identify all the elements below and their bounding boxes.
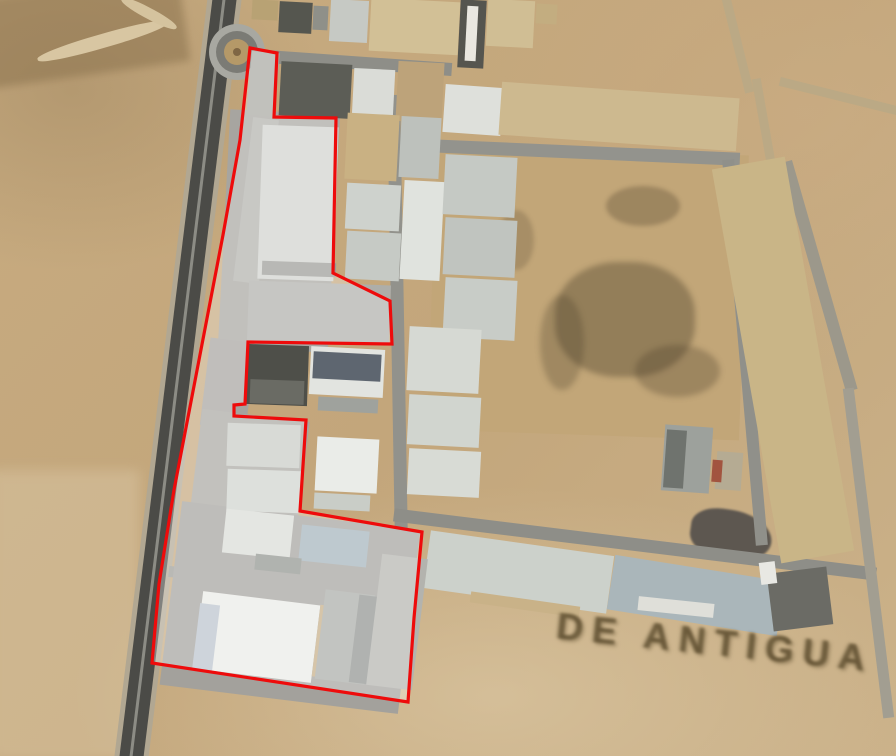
warehouse xyxy=(442,154,517,218)
warehouse xyxy=(442,84,503,136)
warehouse-units xyxy=(222,509,294,560)
warehouse-dark-half xyxy=(663,429,687,488)
solar-panel-roof xyxy=(312,351,381,382)
warehouse xyxy=(443,217,518,278)
warehouse xyxy=(329,0,369,43)
warehouse xyxy=(352,68,396,120)
walled-yard-dark xyxy=(767,567,834,632)
warehouse xyxy=(406,326,481,394)
parked-trucks-row xyxy=(513,172,546,305)
satellite-map-viewport[interactable]: DE ANTIGUA xyxy=(0,0,896,756)
warehouse xyxy=(345,183,401,232)
warehouse xyxy=(250,379,305,405)
warehouse xyxy=(407,448,481,498)
warehouse xyxy=(226,469,300,514)
warehouse xyxy=(407,394,482,448)
yard-top-parcel xyxy=(246,51,279,117)
warehouse-dark-roof xyxy=(278,1,313,34)
container-red xyxy=(711,460,723,483)
warehouse xyxy=(535,3,557,24)
parking-rows xyxy=(247,281,391,346)
warehouse xyxy=(314,493,371,512)
warehouse-dark-roof xyxy=(279,61,353,119)
warehouse-panel-roof xyxy=(315,436,380,493)
loading-dock-row xyxy=(262,261,336,278)
warehouse-large-parcel xyxy=(257,125,338,282)
warehouse xyxy=(398,116,441,179)
truck-yard xyxy=(395,61,444,123)
warehouse xyxy=(251,0,278,21)
warehouse-blue-panels xyxy=(298,525,369,568)
warehouse-units xyxy=(486,0,535,48)
warehouse xyxy=(226,423,300,469)
warehouse xyxy=(399,180,444,281)
warehouse xyxy=(312,6,328,31)
warehouse xyxy=(345,231,401,282)
roundabout-center xyxy=(233,48,241,56)
warehouse-units xyxy=(344,113,399,182)
